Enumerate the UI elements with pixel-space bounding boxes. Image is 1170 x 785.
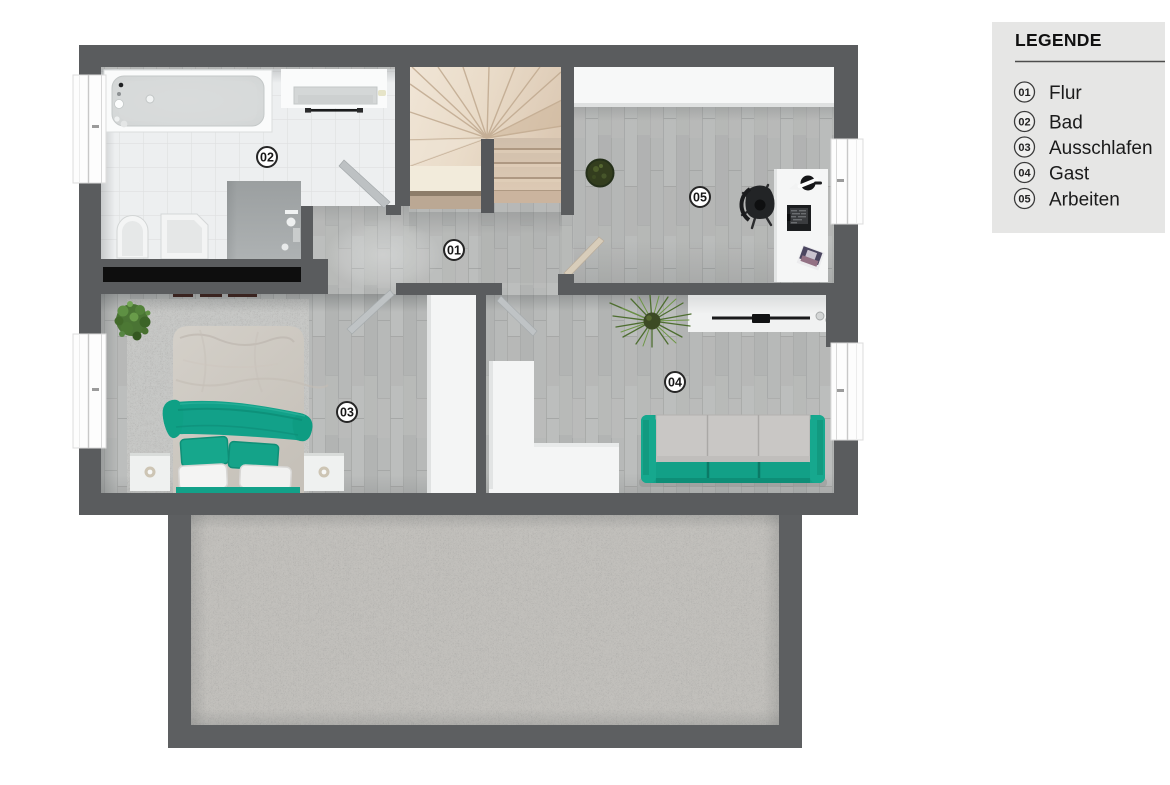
svg-text:01: 01	[1018, 87, 1030, 99]
svg-text:05: 05	[1018, 194, 1030, 206]
svg-text:Flur: Flur	[1049, 83, 1082, 104]
svg-text:01: 01	[447, 244, 461, 258]
svg-text:Arbeiten: Arbeiten	[1049, 190, 1120, 211]
svg-text:04: 04	[1018, 168, 1031, 180]
svg-text:Ausschlafen: Ausschlafen	[1049, 138, 1153, 159]
svg-text:02: 02	[260, 151, 274, 165]
svg-text:LEGENDE: LEGENDE	[1015, 30, 1102, 50]
svg-text:05: 05	[693, 191, 707, 205]
svg-text:Bad: Bad	[1049, 113, 1083, 134]
svg-text:04: 04	[668, 376, 682, 390]
svg-text:02: 02	[1018, 117, 1030, 129]
svg-text:03: 03	[1018, 142, 1030, 154]
svg-text:03: 03	[340, 406, 354, 420]
svg-text:Gast: Gast	[1049, 164, 1090, 185]
